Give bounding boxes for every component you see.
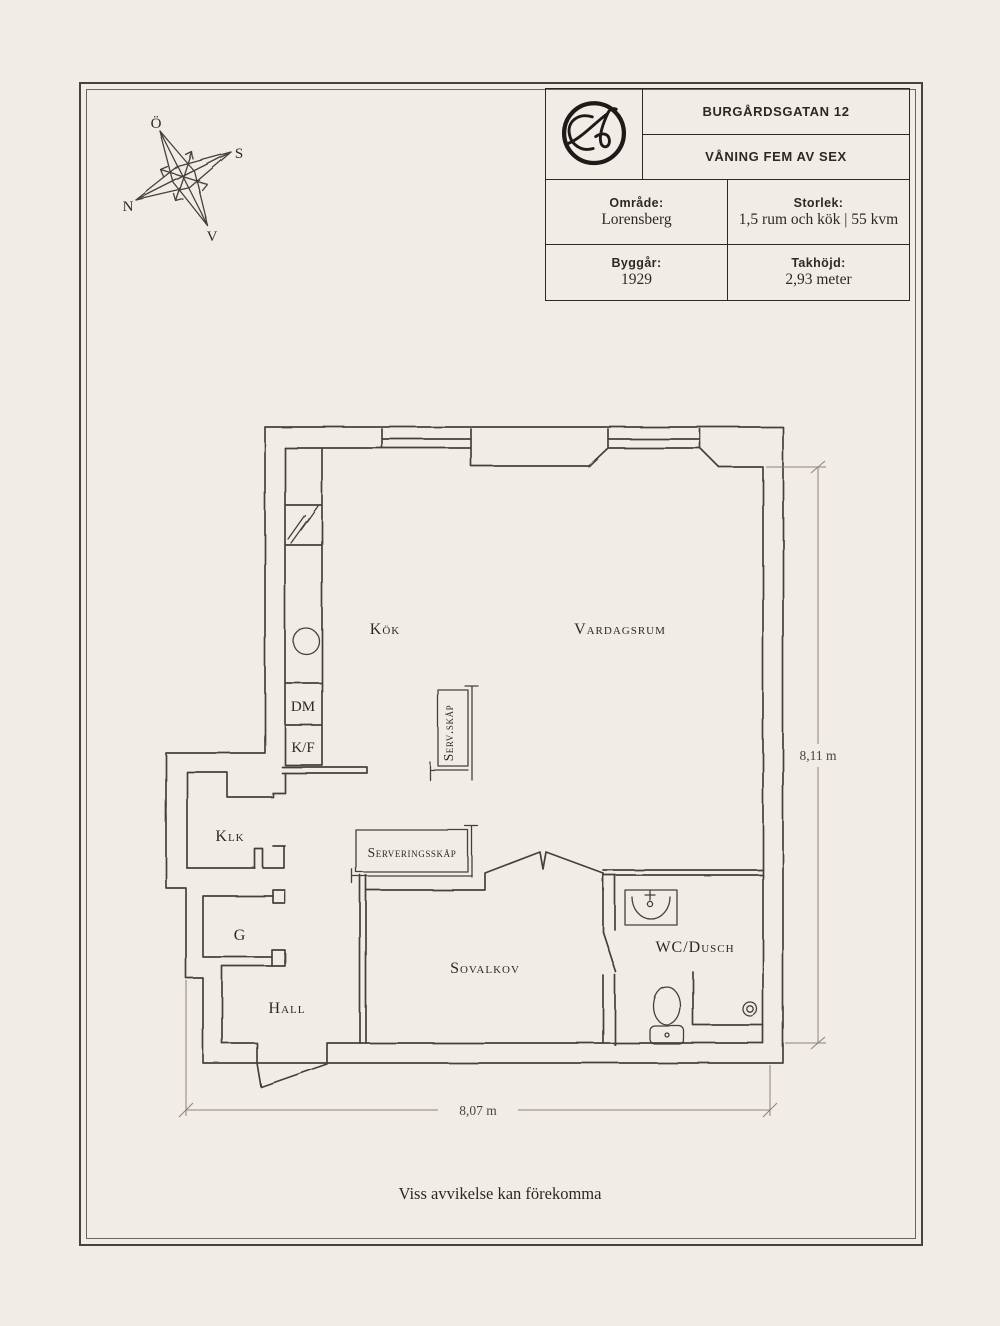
compass-label-west: V <box>207 229 218 245</box>
compass-label-north: N <box>123 199 134 215</box>
walls <box>166 427 783 1087</box>
floor-drain-icon <box>743 1002 757 1016</box>
compass-rose-icon <box>136 131 231 226</box>
dimension-height-label: 8,11 m <box>800 748 837 763</box>
room-label-sovalkov: Sovalkov <box>450 960 520 977</box>
label-serv-skap: Serv.skåp <box>441 705 456 762</box>
fixtures <box>288 506 757 1044</box>
bathroom-sink-icon <box>625 890 677 925</box>
dimension-lines <box>179 461 826 1117</box>
stove-icon <box>288 506 318 543</box>
room-label-klk: Klk <box>215 828 244 845</box>
dimension-width-label: 8,07 m <box>459 1103 497 1118</box>
room-label-vardagsrum: Vardagsrum <box>574 621 666 638</box>
floor-plan: Ö S N V <box>0 0 1000 1326</box>
room-label-hall: Hall <box>269 1000 306 1017</box>
room-label-kok: Kök <box>370 621 400 638</box>
compass-label-south: S <box>235 146 243 162</box>
label-kf: K/F <box>291 740 314 756</box>
label-dm: DM <box>291 699 315 715</box>
kitchen-sink-icon <box>293 628 319 654</box>
room-label-wc-dusch: WC/Dusch <box>655 939 734 956</box>
compass-label-east: Ö <box>151 115 162 132</box>
floorplan-page: { "page": { "background": "#f2ece6", "li… <box>0 0 1000 1326</box>
toilet-icon <box>650 987 684 1044</box>
room-label-g: G <box>234 927 247 944</box>
disclaimer-text: Viss avvikelse kan förekomma <box>0 1184 1000 1204</box>
label-serveringsskap: Serveringsskåp <box>368 845 457 860</box>
